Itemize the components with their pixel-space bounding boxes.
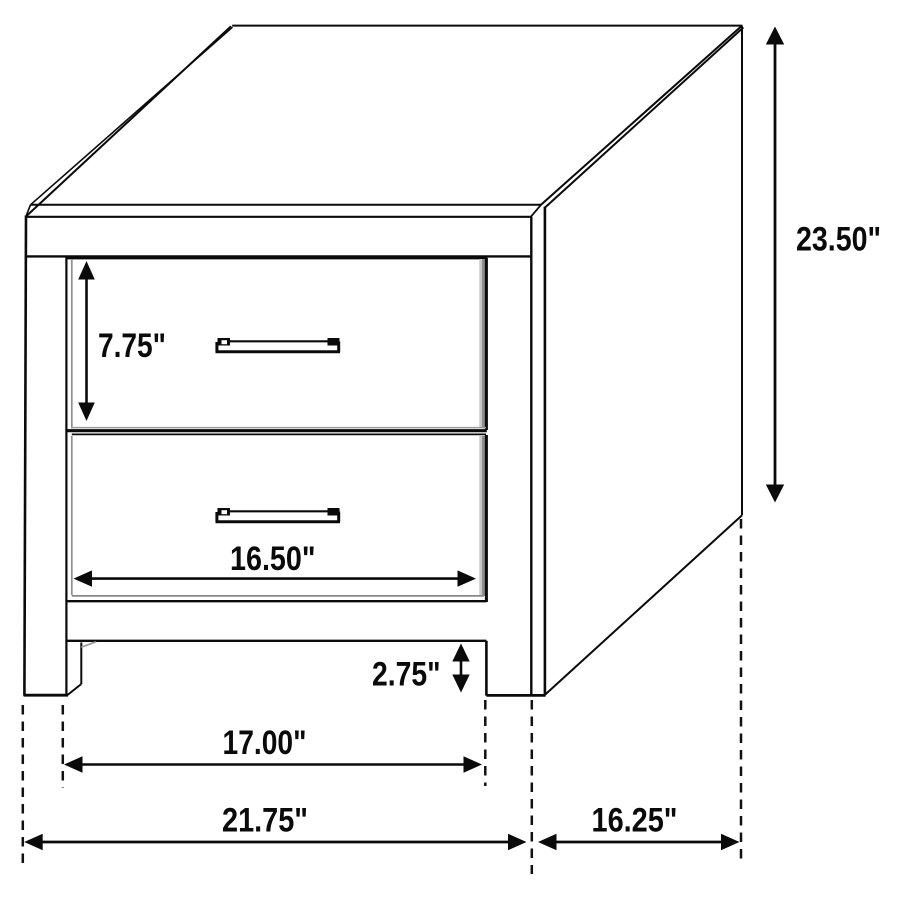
svg-text:21.75": 21.75" <box>222 802 308 840</box>
svg-text:17.00": 17.00" <box>223 724 307 762</box>
svg-text:23.50": 23.50" <box>796 221 881 259</box>
svg-text:16.25": 16.25" <box>592 802 678 840</box>
svg-text:7.75": 7.75" <box>98 327 166 365</box>
svg-text:16.50": 16.50" <box>230 540 316 578</box>
svg-text:2.75": 2.75" <box>372 656 441 694</box>
